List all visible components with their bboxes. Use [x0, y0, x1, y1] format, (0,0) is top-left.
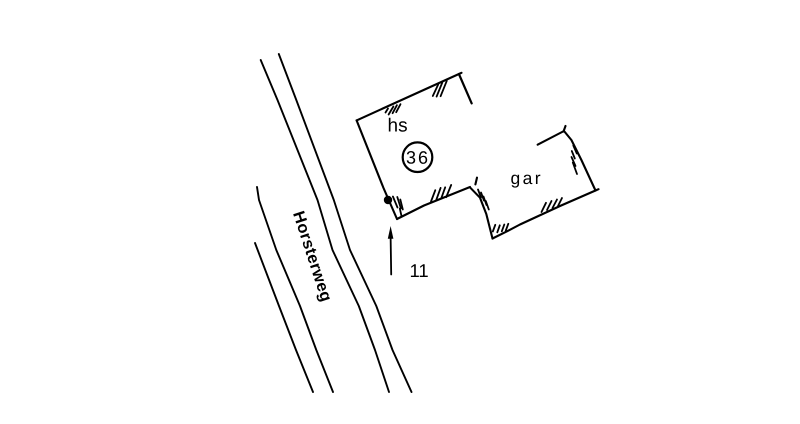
svg-text:hs: hs: [387, 116, 407, 137]
svg-text:36: 36: [406, 148, 430, 168]
svg-text:11: 11: [409, 260, 428, 281]
svg-text:gar: gar: [510, 168, 543, 188]
